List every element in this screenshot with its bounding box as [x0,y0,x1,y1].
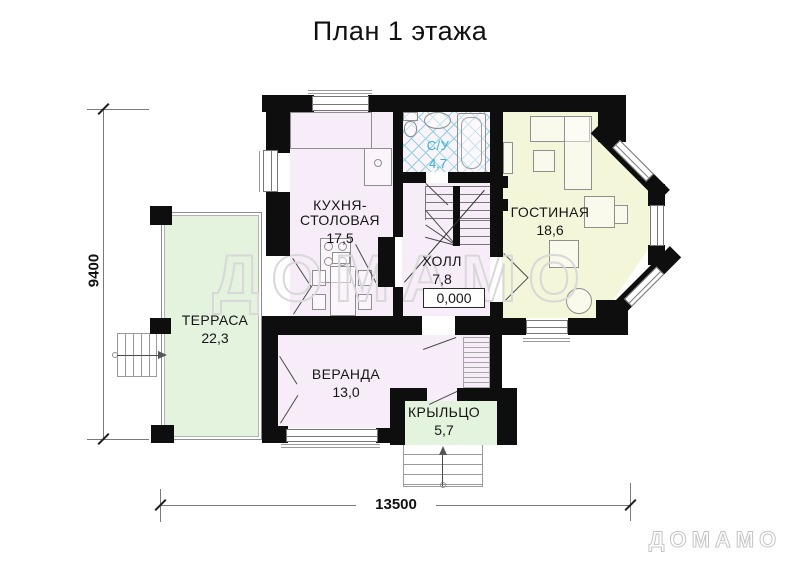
room-name: ТЕРРАСА [165,313,265,328]
room-name: КРЫЛЬЦО [400,405,488,420]
washbasin [424,112,451,129]
room-name: ВЕРАНДА [296,367,396,382]
wall-segment [266,192,290,256]
window-symbol [263,150,278,192]
room-area: 7,8 [402,272,482,287]
window-sill-line [308,90,372,91]
steps-direction-line [117,355,163,356]
page-title: План 1 этажа [0,16,800,47]
window-sill-line [281,444,380,445]
window-sill-line [523,338,570,339]
wall-segment [502,318,526,335]
wall-chimney-nib [492,176,508,188]
room-label-bathroom: С/У 4,7 [410,138,466,171]
room-area: 22,3 [165,331,265,346]
kitchen-sink [364,148,392,186]
wall-segment [497,388,517,445]
window-sill-line [523,341,570,342]
kitchen-counter [290,112,372,149]
room-area: 5,7 [400,423,488,438]
veranda-hatch-strip [463,337,490,392]
sink-faucet [374,159,382,167]
up-arrow-icon [439,446,447,455]
window-symbol [312,96,369,111]
room-label-terrace: ТЕРРАСА 22,3 [165,313,265,346]
room-area: 17,5 [288,231,392,246]
wall-segment [393,287,403,316]
window-sill-line [281,447,380,448]
dim-extension-line [87,109,149,110]
stairs-center-rail [453,186,460,246]
wall-segment [448,172,492,183]
terrace-post [150,206,172,225]
window-symbol [650,205,664,246]
wall-segment [402,172,426,183]
dim-extension-line [87,439,149,440]
wall-segment [455,316,502,335]
toilet [404,121,417,137]
window-symbol [526,320,568,334]
right-arrow-icon [158,351,167,359]
wall-segment [648,184,665,206]
wall-segment [262,426,288,443]
room-name: КУХНЯ- [288,198,392,213]
wall-segment [262,316,422,335]
wall-segment [568,318,598,335]
dim-value-width: 13500 [356,496,436,514]
room-area: 18,6 [495,223,605,238]
floor-plan-page: { "title": "План 1 этажа", "watermark": … [0,0,800,565]
tv-cabinet [503,142,513,174]
wall-segment [368,95,600,112]
window-sill-line [259,151,260,192]
room-name: ГОСТИНАЯ [495,205,605,220]
window-sill-line [308,93,372,94]
room-label-veranda: ВЕРАНДА 13,0 [296,367,396,400]
room-area: 4,7 [410,156,466,171]
wall-segment [490,335,502,390]
dim-line-vertical [103,109,104,440]
coffee-table [533,150,555,172]
dim-value-height: 9400 [86,241,103,301]
terrace-post [151,425,174,443]
room-label-porch: КРЫЛЬЦО 5,7 [400,405,488,438]
room-name: ХОЛЛ [402,254,482,269]
sofa [564,116,592,190]
elevation-mark: 0,000 [423,288,485,308]
wall-segment [266,95,290,153]
side-table [614,205,628,224]
room-label-kitchen: КУХНЯ- СТОЛОВАЯ 17,5 [288,198,392,246]
room-area: 13,0 [296,385,396,400]
toilet [403,112,418,121]
room-label-hall: ХОЛЛ 7,8 [402,254,482,287]
wall-segment [403,388,427,401]
room-name: СТОЛОВАЯ [288,213,392,228]
window-symbol [286,429,378,442]
steps-start-marker [440,482,446,488]
watermark-logo: ДОМАМО [636,527,794,553]
room-name: С/У [410,138,466,153]
room-label-living: ГОСТИНАЯ 18,6 [495,205,605,238]
